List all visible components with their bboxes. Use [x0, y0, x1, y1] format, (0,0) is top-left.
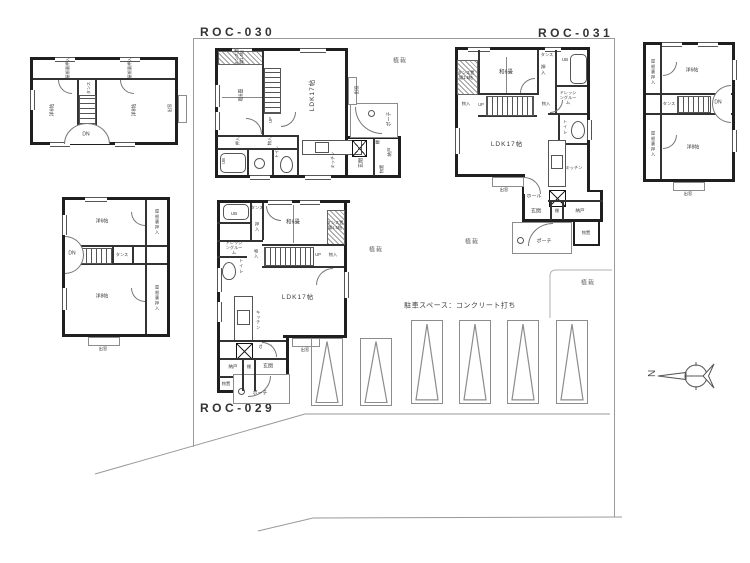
window — [344, 272, 349, 298]
window — [662, 42, 682, 47]
planting-label: 植栽 — [393, 56, 407, 65]
room-label-tansu: タンス — [251, 206, 263, 210]
room-label-monooki: 物置 — [222, 382, 230, 386]
room-label-kitchen: キッチン — [331, 152, 335, 169]
room-label-tansu: タンス — [87, 82, 91, 94]
toilet — [571, 121, 585, 139]
window — [215, 112, 220, 130]
bay-window — [178, 95, 187, 123]
door-arc — [281, 112, 296, 127]
window — [268, 200, 292, 205]
wall — [598, 222, 600, 246]
room-label-ldk: LDK17帖 — [491, 142, 523, 149]
room-label-washitsu: 和6畳 — [286, 220, 300, 226]
parking-stall — [411, 320, 443, 404]
bathtub — [220, 153, 246, 173]
room-label-washitsu: 和6畳 — [240, 89, 245, 102]
room-label-oshiire: 押入 — [255, 222, 259, 232]
stairs-dn-label: DN — [68, 252, 75, 257]
room-label-bay-window: 出窓 — [684, 192, 692, 196]
room-label-attic-closet: 屋根裏押入 — [651, 59, 655, 85]
parking-stall — [507, 320, 539, 404]
north-label: N — [647, 370, 658, 377]
window — [115, 142, 135, 147]
wall — [600, 190, 603, 222]
window — [215, 85, 220, 107]
wall — [33, 78, 175, 80]
wall — [247, 148, 249, 175]
wall — [167, 197, 170, 337]
wall — [555, 85, 587, 87]
wall — [30, 57, 178, 60]
room-label-monoiri: 物入 — [254, 249, 258, 259]
porch-step-circle — [517, 237, 524, 244]
plan-title-roc030: ROC-030 — [200, 25, 275, 39]
door-arc — [58, 80, 72, 94]
room-label-toilet: トイレ — [239, 258, 243, 274]
window — [62, 288, 67, 310]
bay-window — [88, 337, 120, 346]
parking-stall — [556, 320, 588, 404]
room-label-monoiri: 物入 — [542, 102, 550, 106]
room-label-monoiri: 物入 — [462, 102, 470, 106]
wall — [254, 358, 256, 391]
room-label-bay-window: 出窓 — [500, 188, 508, 192]
room-label-tansu-space: タンス置場1.5帖 — [235, 47, 245, 67]
window — [587, 120, 592, 140]
door-arc — [120, 80, 134, 94]
room-label-nando: 納戸 — [229, 365, 238, 370]
room-label-attic-closet: 屋根裏押入 — [66, 58, 70, 79]
kitchen-sink — [551, 155, 563, 169]
room-label-dressing: ドレッシングルーム — [224, 241, 244, 255]
kitchen-sink — [237, 310, 250, 325]
staircase — [677, 96, 711, 113]
wall — [217, 148, 299, 150]
window — [455, 128, 460, 154]
room-label-ldk: LDK17帖 — [282, 295, 314, 302]
parking-stall — [459, 320, 491, 404]
kitchen-sink — [315, 142, 329, 153]
room-label-porch: ポーチ — [252, 392, 267, 397]
parking-note: 駐車スペース：コンクリート打ち — [404, 303, 516, 310]
wall — [112, 245, 114, 263]
room-label-yo8: 洋8帖 — [96, 295, 109, 300]
room-label-toilet: トイレ — [275, 146, 279, 159]
door-arc — [520, 78, 535, 93]
wall — [562, 200, 564, 220]
toilet — [280, 156, 293, 173]
wall — [145, 200, 147, 334]
room-label-genkan: 玄関 — [360, 158, 365, 168]
wall — [478, 50, 480, 95]
north-arrow: N — [640, 352, 720, 396]
room-label-tana: 棚 — [376, 140, 380, 144]
door-arc — [131, 212, 145, 226]
stairs-dn-label: DN — [82, 133, 89, 138]
planting-label: 植栽 — [581, 278, 595, 287]
room-label-toilet: トイレ — [563, 119, 567, 135]
room-label-porch: ポーチ — [388, 111, 393, 126]
room-label-porch: ポーチ — [536, 240, 551, 245]
room-label-tana: 棚 — [247, 365, 251, 369]
room-label-monoiri: 物入 — [268, 137, 272, 145]
room-label-tansu: タンス — [541, 53, 553, 57]
porch-step-circle — [368, 110, 375, 117]
room-label-monooki: 物置 — [380, 165, 384, 173]
door-arc — [266, 206, 281, 221]
window — [732, 60, 737, 80]
window — [85, 197, 107, 202]
wall — [262, 244, 344, 246]
door-arc — [663, 135, 677, 149]
wall — [398, 136, 401, 178]
planting-label: 植栽 — [369, 245, 383, 254]
staircase — [264, 247, 314, 266]
room-label-washitsu: 和6畳 — [499, 70, 513, 76]
wall — [348, 175, 401, 178]
door-arc — [246, 118, 262, 134]
wall — [537, 50, 539, 95]
room-label-bay-window: 出窓 — [168, 104, 172, 112]
room-label-monoiri: 物入 — [329, 253, 337, 257]
wall — [548, 200, 603, 202]
room-label-yo6: 洋6帖 — [51, 104, 56, 117]
wall — [548, 113, 587, 115]
staircase — [486, 96, 534, 116]
wall — [550, 200, 552, 220]
bathtub — [223, 204, 249, 220]
wall — [345, 48, 348, 178]
room-label-genkan: 玄関 — [263, 365, 273, 370]
wall — [220, 358, 286, 360]
window — [732, 130, 737, 152]
room-label-tansu: タンス — [116, 253, 128, 257]
window — [30, 90, 35, 110]
bay-window — [492, 177, 524, 187]
wall — [643, 42, 646, 182]
wall — [217, 135, 299, 137]
wall — [217, 200, 220, 393]
room-label-tansu-space: タンス置場1.5帖 — [456, 71, 476, 81]
wall — [558, 113, 560, 143]
parking-stall — [311, 338, 343, 406]
window — [62, 215, 67, 235]
wall — [220, 340, 286, 342]
bathtub — [570, 54, 587, 84]
parking-stall — [360, 338, 392, 406]
wall — [217, 222, 252, 224]
door-arc — [524, 177, 541, 194]
site-boundary-diagonals — [0, 0, 750, 563]
plan-title-roc031: ROC-031 — [538, 26, 613, 40]
stairs-up-label: UP — [315, 253, 321, 257]
room-label-kitchen: キッチン — [256, 310, 260, 331]
wall — [373, 139, 375, 176]
staircase — [264, 68, 281, 114]
stairs-up-label: UP — [269, 117, 273, 123]
site-plan-canvas: ROC-030 ROC-031 ROC-029 植栽 植栽 植栽 植栽 ポーチ … — [0, 0, 750, 563]
window — [300, 48, 326, 53]
wall — [573, 244, 600, 246]
wall — [478, 93, 537, 95]
room-label-attic-closet: 屋根裏押入 — [155, 209, 159, 235]
sink — [254, 158, 265, 169]
wall — [297, 135, 299, 176]
room-label-oshiire: 押入 — [236, 137, 240, 145]
room-label-tansu-space: タンス置場1.5帖 — [325, 221, 345, 231]
planting-label: 植栽 — [465, 237, 479, 246]
room-label-attic-closet: 屋根裏押入 — [128, 58, 132, 79]
room-label-monooki: 物置 — [582, 231, 590, 235]
bay-window — [673, 182, 705, 191]
room-label-tansu: タンス — [663, 102, 675, 106]
room-label-yo6: 洋6帖 — [96, 220, 109, 225]
room-label-ub: UB — [562, 58, 568, 63]
window — [300, 200, 320, 205]
room-label-hall: ホール — [526, 195, 541, 200]
room-label-bay-window: 出窓 — [99, 347, 107, 351]
room-label-genkan: 玄関 — [531, 210, 541, 215]
room-label-yo8: 洋8帖 — [687, 146, 700, 151]
wall — [242, 358, 244, 391]
door-arc — [262, 342, 277, 357]
appliance-box — [352, 140, 367, 157]
door-arc — [131, 288, 145, 302]
room-label-nando: 納戸 — [576, 209, 585, 214]
door-arc — [316, 268, 333, 285]
stairs-up-label: UP — [478, 103, 484, 107]
room-label-oshiire: 押入 — [541, 65, 546, 76]
room-label-kitchen: キッチン — [566, 166, 583, 170]
stairs-dn-label: DN — [714, 101, 721, 106]
door-arc — [550, 100, 563, 113]
wall — [660, 45, 662, 179]
room-label-yo8: 洋8帖 — [133, 104, 138, 117]
boundary-line — [193, 38, 194, 447]
room-label-attic-closet: 屋根裏押入 — [155, 285, 159, 311]
room-label-bay-window: 出窓 — [301, 348, 309, 352]
wall — [643, 42, 735, 45]
window — [250, 175, 270, 180]
wall — [573, 222, 575, 246]
room-label-nando: 納戸 — [388, 148, 393, 157]
wall — [62, 197, 170, 200]
boundary-line — [614, 38, 615, 517]
window — [217, 302, 222, 322]
room-label-tana: 棚 — [555, 209, 559, 213]
toilet — [222, 262, 236, 280]
room-label-bay-window: 出窓 — [355, 86, 360, 95]
window — [698, 42, 718, 47]
room-label-ldk: LDK17帖 — [310, 79, 317, 111]
window — [305, 175, 331, 180]
door-arc — [663, 62, 677, 76]
room-label-yo6: 洋6帖 — [686, 69, 699, 74]
wall — [217, 376, 219, 393]
wall — [219, 376, 233, 378]
room-label-attic-closet: 屋根裏押入 — [651, 131, 655, 157]
wall — [132, 245, 134, 263]
